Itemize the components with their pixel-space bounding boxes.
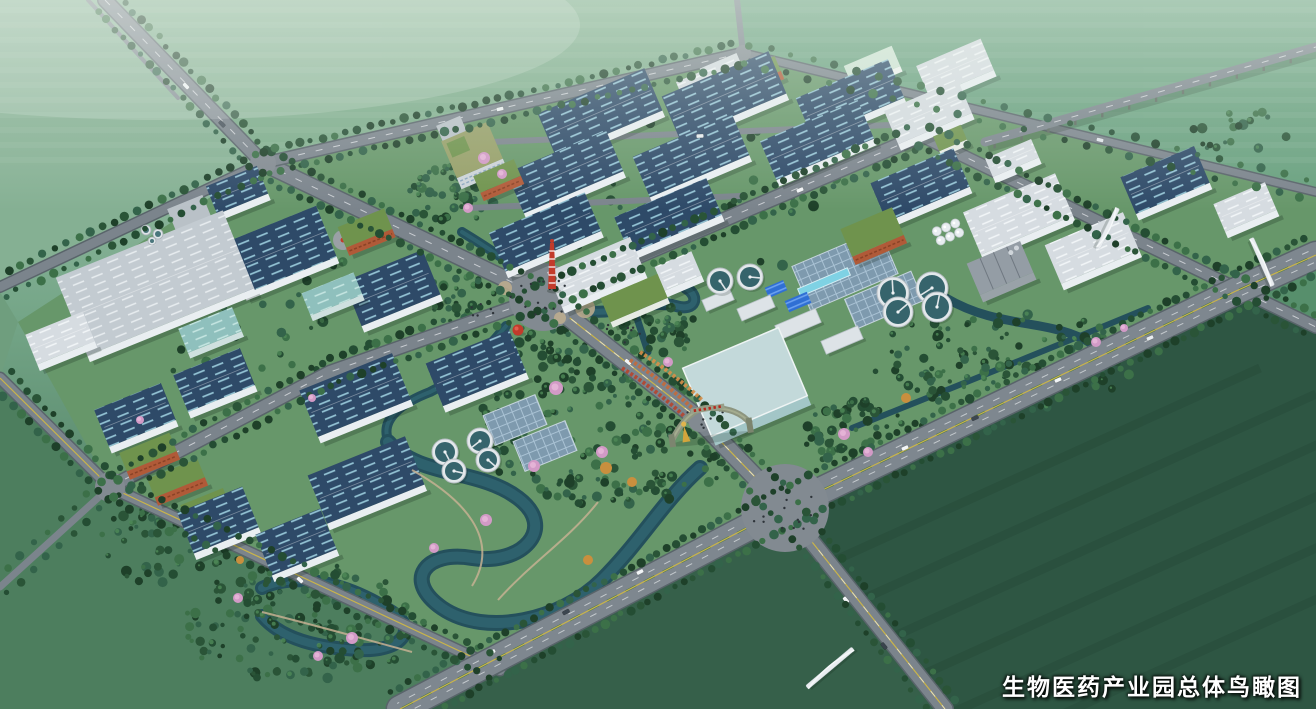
street-tree [120, 212, 129, 221]
street-tree [1048, 355, 1054, 361]
street-tree [520, 620, 528, 628]
street-tree [318, 388, 325, 395]
street-tree [366, 593, 371, 598]
street-tree [426, 345, 434, 353]
street-tree [646, 396, 651, 401]
street-tree [61, 266, 66, 271]
street-tree [378, 598, 384, 604]
street-tree [832, 544, 841, 553]
street-tree [1283, 296, 1289, 302]
tree [645, 345, 652, 352]
tree [344, 660, 349, 665]
pedestrian [471, 306, 473, 308]
tree [286, 300, 295, 309]
tree [412, 209, 420, 217]
street-tree [767, 467, 772, 472]
tree [841, 445, 847, 451]
street-tree [786, 482, 794, 490]
tank-arm [892, 280, 893, 293]
street-tree [71, 530, 78, 537]
pedestrian [702, 418, 704, 420]
street-tree [405, 678, 412, 685]
street-tree [579, 262, 586, 269]
street-tree [30, 566, 37, 573]
street-tree [549, 319, 558, 328]
street-tree [588, 349, 596, 357]
street-tree [368, 226, 374, 232]
tree-highlight [348, 627, 352, 631]
street-tree [1062, 389, 1069, 396]
street-tree [486, 300, 491, 305]
tree-highlight [491, 291, 495, 295]
street-tree [396, 684, 404, 692]
street-tree [609, 251, 616, 258]
street-tree [885, 433, 893, 441]
street-tree [456, 238, 464, 246]
street-tree [575, 633, 582, 640]
street-tree [171, 503, 178, 510]
tree [534, 375, 542, 383]
tree-highlight [277, 351, 282, 356]
street-tree [463, 638, 471, 646]
street-tree [357, 369, 366, 378]
street-tree [650, 259, 657, 266]
tree [582, 495, 587, 500]
tree-highlight [605, 381, 608, 384]
tree-highlight [665, 316, 669, 320]
street-tree [486, 649, 493, 656]
street-tree [109, 493, 118, 502]
street-tree [927, 455, 933, 461]
street-tree [842, 601, 849, 608]
street-tree [27, 258, 34, 265]
street-tree [659, 257, 666, 264]
tree [540, 344, 546, 350]
street-tree [157, 520, 166, 529]
tree [258, 364, 265, 371]
street-tree [179, 458, 188, 467]
aerial-view-stage: 生物医药产业园总体鸟瞰图 [0, 0, 1316, 709]
street-tree [384, 335, 393, 344]
street-tree [1284, 244, 1290, 250]
street-tree [1151, 259, 1160, 268]
street-tree [1273, 291, 1281, 299]
pedestrian [538, 280, 540, 282]
tree [207, 650, 212, 655]
street-tree [583, 586, 589, 592]
street-tree [1171, 295, 1180, 304]
blossom-highlight [1093, 339, 1098, 344]
street-tree [1147, 308, 1153, 314]
street-tree [590, 260, 596, 266]
tree [554, 493, 562, 501]
tree [813, 412, 818, 417]
street-tree [1197, 324, 1205, 332]
street-tree [759, 538, 765, 544]
tree [273, 667, 281, 675]
tree [330, 570, 340, 580]
tree [274, 634, 280, 640]
street-tree [326, 354, 334, 362]
street-tree [965, 394, 975, 404]
pedestrian [700, 423, 702, 425]
street-tree [710, 453, 718, 461]
tree [251, 601, 256, 606]
tree [859, 411, 865, 417]
street-tree [94, 487, 102, 495]
street-tree [440, 230, 446, 236]
street-tree [672, 584, 677, 589]
street-tree [679, 534, 687, 542]
tree [153, 529, 162, 538]
tree [655, 319, 660, 324]
street-tree [1182, 247, 1190, 255]
street-tree [714, 559, 723, 568]
street-tree [515, 296, 523, 304]
tree [632, 454, 638, 460]
street-tree [449, 337, 458, 346]
autumn-tree [600, 462, 612, 474]
street-tree [1118, 366, 1124, 372]
street-tree [1300, 235, 1308, 243]
tree [134, 525, 138, 529]
tree [620, 434, 630, 444]
street-tree [138, 455, 144, 461]
tree [1012, 318, 1021, 327]
street-tree [860, 582, 868, 590]
street-tree [915, 695, 924, 704]
street-tree [17, 409, 26, 418]
street-tree [370, 366, 377, 373]
street-tree [375, 229, 384, 238]
tree-highlight [1110, 387, 1112, 389]
tree [237, 626, 243, 632]
street-tree [1300, 304, 1309, 313]
street-tree [935, 677, 943, 685]
street-tree [531, 657, 537, 663]
street-tree [408, 612, 416, 620]
street-tree [548, 302, 556, 310]
street-tree [548, 646, 557, 655]
street-tree [893, 429, 900, 436]
tree [873, 369, 879, 375]
tree-highlight [539, 339, 544, 344]
street-tree [761, 494, 767, 500]
street-tree [1155, 347, 1163, 355]
tree-highlight [256, 610, 259, 613]
street-tree [611, 573, 618, 580]
street-tree [1232, 297, 1241, 306]
street-tree [973, 389, 981, 397]
tree [684, 337, 690, 343]
street-tree [920, 417, 928, 425]
street-tree [1301, 330, 1307, 336]
street-tree [58, 422, 64, 428]
tree-highlight [1072, 336, 1076, 340]
street-tree [691, 244, 697, 250]
street-tree [1084, 337, 1092, 345]
street-tree [748, 216, 757, 225]
street-tree [62, 239, 69, 246]
street-tree [863, 630, 868, 635]
street-tree [1291, 239, 1298, 246]
street-tree [1131, 224, 1140, 233]
tree-highlight [556, 348, 560, 352]
street-tree [223, 408, 232, 417]
street-tree [371, 339, 380, 348]
street-tree [310, 567, 320, 577]
street-tree [169, 438, 176, 445]
street-tree [527, 311, 535, 319]
street-tree [664, 588, 670, 594]
street-tree [1063, 215, 1069, 221]
street-tree [1137, 356, 1143, 362]
street-tree [1212, 287, 1218, 293]
street-tree [344, 607, 351, 614]
street-tree [708, 565, 715, 572]
tree-highlight [544, 385, 547, 388]
blossom-highlight [235, 595, 240, 600]
street-tree [1127, 359, 1134, 366]
tree-highlight [122, 539, 124, 541]
street-tree [847, 610, 854, 617]
tree [873, 425, 879, 431]
tree-highlight [789, 210, 792, 213]
street-tree [870, 638, 878, 646]
tank-center [478, 439, 481, 442]
street-tree [1003, 379, 1010, 386]
street-tree [17, 578, 26, 587]
tree [621, 483, 626, 488]
tree [828, 438, 834, 444]
tree [209, 624, 217, 632]
street-tree [235, 533, 242, 540]
street-tree [1109, 326, 1116, 333]
tree [171, 368, 177, 374]
street-tree [17, 378, 24, 385]
tree [956, 362, 963, 369]
street-tree [148, 492, 154, 498]
tree [1056, 324, 1063, 331]
pedestrian [492, 312, 494, 314]
street-tree [746, 487, 753, 494]
tree [704, 477, 714, 487]
street-tree [1209, 277, 1216, 284]
street-tree [355, 589, 362, 596]
street-tree [111, 219, 119, 227]
street-tree [497, 656, 502, 661]
street-tree [779, 485, 785, 491]
pedestrian [810, 496, 812, 498]
street-tree [506, 320, 512, 326]
street-tree [883, 656, 891, 664]
street-tree [873, 481, 882, 490]
street-tree [820, 574, 825, 579]
tree-highlight [129, 520, 133, 524]
street-tree [1288, 282, 1297, 291]
tree [823, 407, 831, 415]
street-tree [771, 473, 779, 481]
street-tree [1271, 316, 1280, 325]
street-tree [558, 272, 565, 279]
street-tree [672, 540, 680, 548]
tree [650, 327, 658, 335]
street-tree [644, 599, 651, 606]
street-tree [364, 345, 369, 350]
tree [177, 345, 185, 353]
street-tree [92, 455, 99, 462]
tree [215, 597, 222, 604]
street-tree [726, 557, 732, 563]
pedestrian [606, 328, 608, 330]
tree-highlight [340, 259, 343, 262]
street-tree [724, 465, 730, 471]
tree [217, 654, 222, 659]
street-tree [942, 685, 951, 694]
street-tree [1152, 233, 1160, 241]
tree [646, 420, 651, 425]
gate-sign-text [718, 405, 721, 408]
tree [174, 554, 184, 564]
street-tree [1244, 301, 1253, 310]
tree [354, 649, 364, 659]
tree [515, 390, 524, 399]
tree [537, 350, 547, 360]
pedestrian [624, 341, 626, 343]
street-tree [67, 460, 73, 466]
street-tree [637, 265, 646, 274]
street-tree [556, 326, 565, 335]
street-tree [212, 416, 217, 421]
street-tree [1263, 313, 1268, 318]
street-tree [1038, 359, 1046, 367]
tree [440, 283, 447, 290]
street-tree [418, 324, 426, 332]
blossom-highlight [598, 448, 604, 454]
street-tree [74, 261, 79, 266]
autumn-tree [583, 555, 593, 565]
tree [1017, 361, 1021, 365]
pedestrian [632, 327, 634, 329]
tree [592, 492, 602, 502]
street-tree [637, 558, 646, 567]
street-tree [504, 671, 512, 679]
street-tree [831, 460, 838, 467]
street-tree [739, 481, 746, 488]
street-tree [963, 437, 972, 446]
tree [269, 651, 274, 656]
tower-tip [550, 239, 554, 243]
street-tree [910, 464, 916, 470]
tree [452, 275, 460, 283]
street-tree [948, 447, 955, 454]
street-tree [465, 308, 470, 313]
tree [1058, 341, 1064, 347]
street-tree [233, 433, 240, 440]
street-tree [257, 566, 265, 574]
pedestrian [553, 308, 555, 310]
tree [631, 395, 636, 400]
tree [993, 318, 1003, 328]
tree [313, 601, 321, 609]
blossom-highlight [865, 449, 870, 454]
street-tree [23, 387, 31, 395]
tree-highlight [1042, 337, 1046, 341]
street-tree [386, 235, 392, 241]
pedestrian [542, 280, 544, 282]
street-tree [289, 581, 297, 589]
street-tree [52, 245, 58, 251]
tank-center [748, 275, 751, 278]
street-tree [826, 538, 832, 544]
street-tree [441, 651, 449, 659]
tree [1015, 342, 1022, 349]
tree [312, 612, 318, 618]
street-tree [1084, 224, 1092, 232]
tree [662, 482, 666, 486]
pedestrian [798, 521, 800, 523]
street-tree [1193, 286, 1199, 292]
pedestrian [781, 527, 783, 529]
street-tree [1252, 307, 1260, 315]
street-tree [1264, 295, 1270, 301]
street-tree [1201, 283, 1207, 289]
street-tree [405, 326, 414, 335]
street-tree [409, 638, 415, 644]
tree [568, 367, 574, 373]
tree [933, 330, 944, 341]
tree [569, 469, 573, 473]
street-tree [221, 436, 228, 443]
street-tree [567, 266, 577, 276]
street-tree [58, 515, 65, 522]
tree [682, 482, 687, 487]
street-tree [949, 403, 956, 410]
pedestrian [530, 283, 532, 285]
pedestrian [753, 520, 755, 522]
tree [576, 357, 581, 362]
gate-sign-text [698, 408, 701, 411]
street-tree [1057, 350, 1065, 358]
street-tree [252, 421, 261, 430]
street-tree [579, 344, 588, 353]
street-tree [432, 666, 439, 673]
tree [563, 489, 571, 497]
street-tree [441, 318, 446, 323]
tree-highlight [507, 462, 510, 465]
pedestrian [802, 528, 804, 530]
tree [129, 526, 134, 531]
street-tree [101, 462, 109, 470]
street-tree [431, 624, 438, 631]
pedestrian [630, 329, 632, 331]
street-tree [333, 579, 340, 586]
street-tree [65, 429, 74, 438]
tree-highlight [664, 492, 667, 495]
pedestrian [534, 313, 536, 315]
caption: 生物医药产业园总体鸟瞰图 [1002, 668, 1302, 702]
street-tree [883, 476, 890, 483]
street-tree [60, 452, 69, 461]
tree [884, 424, 889, 429]
street-tree [297, 397, 306, 406]
street-tree [38, 250, 46, 258]
street-tree [828, 502, 835, 509]
tree [99, 532, 105, 538]
street-tree [1132, 248, 1138, 254]
street-tree [190, 455, 197, 462]
street-tree [168, 217, 174, 223]
